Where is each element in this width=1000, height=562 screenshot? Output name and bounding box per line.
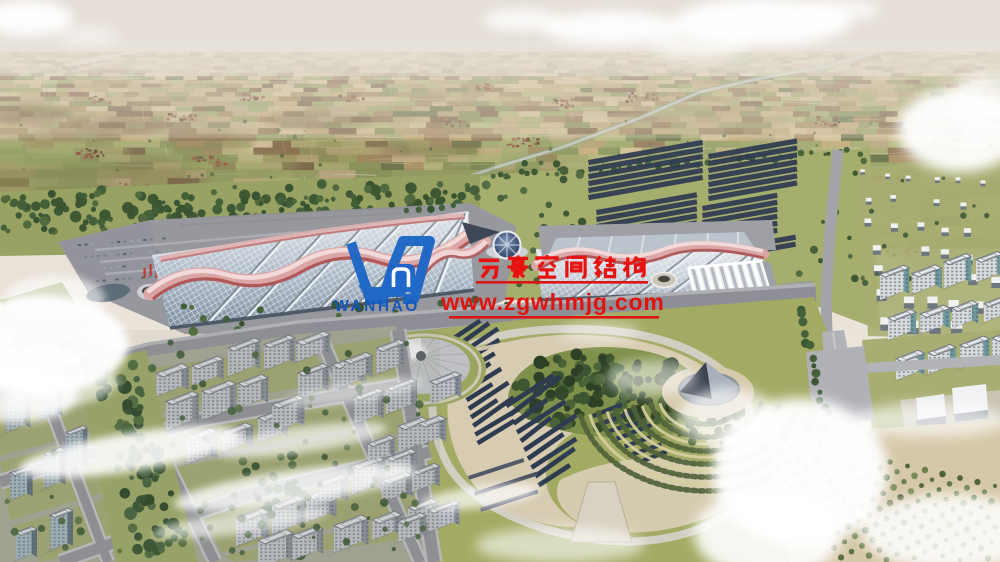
svg-text:WANHAO: WANHAO (334, 298, 420, 315)
svg-text:www.zgwhmjg.com: www.zgwhmjg.com (440, 289, 664, 315)
